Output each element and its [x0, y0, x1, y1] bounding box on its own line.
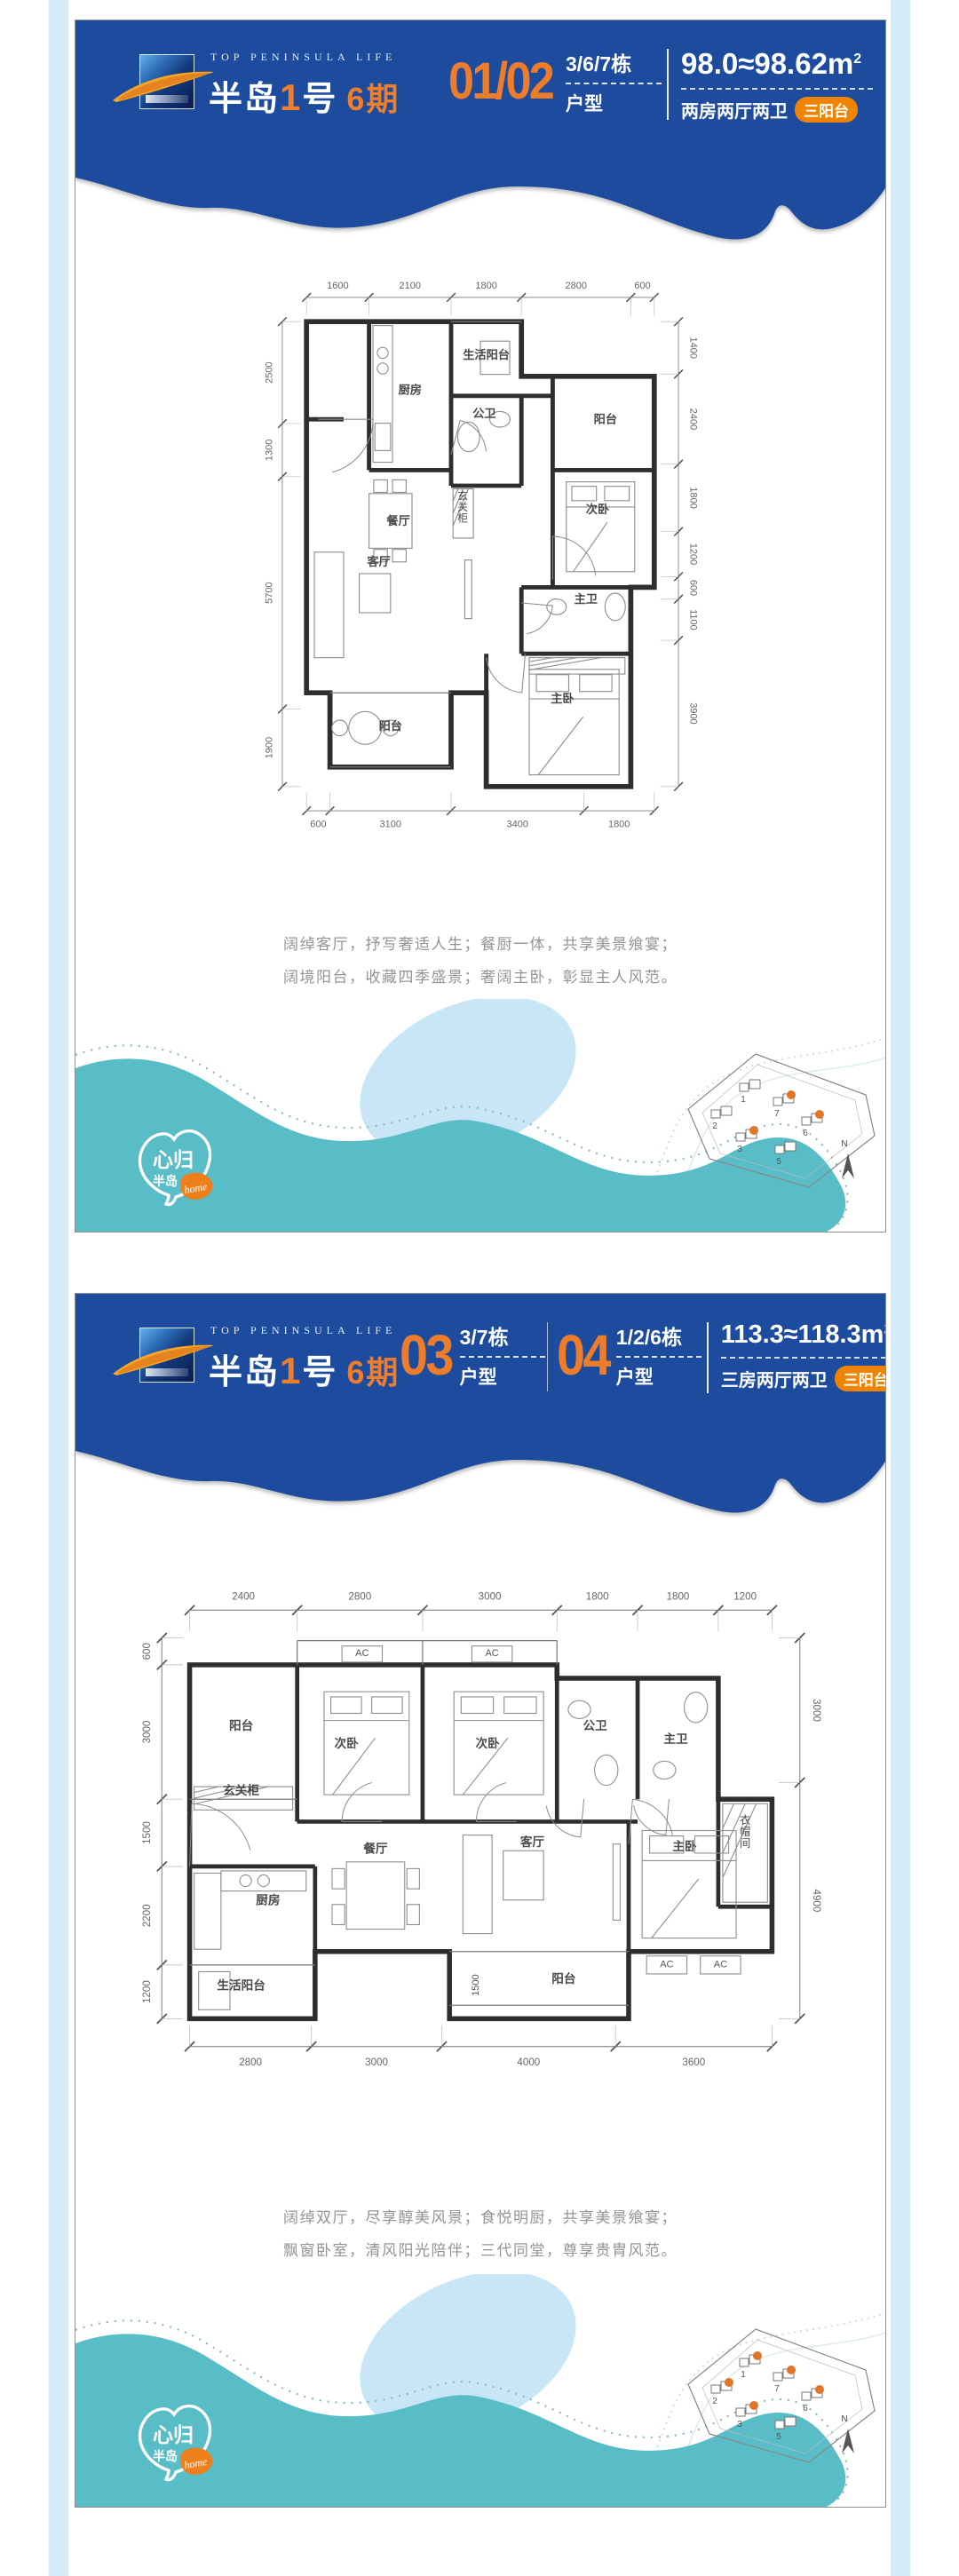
plan-label: 1800	[475, 281, 496, 291]
plan-label: 3000	[141, 1721, 153, 1744]
header-wave	[75, 1426, 885, 1524]
description-line: 阔绰客厅，抒写奢适人生；餐厨一体，共享美景飨宴；	[75, 928, 885, 961]
card-header: TOP PENINSULA LIFE 半岛1号6期 01/02 3/6/7栋 户…	[75, 20, 885, 154]
unit-info: 03 3/7栋 户型 04 1/2/6栋 户型	[400, 1320, 886, 1393]
plan-label: 2400	[687, 408, 698, 430]
site-map: 123567N	[676, 2322, 878, 2471]
room-spec: 两房两厅两卫	[681, 97, 788, 123]
plan-label: 1800	[585, 1591, 608, 1603]
plan-label: 1900	[264, 737, 274, 758]
room-label: 公卫	[472, 407, 495, 420]
room-spec: 三房两厅两卫	[721, 1366, 828, 1391]
plan-outline	[306, 321, 654, 787]
right-accent-strip	[891, 0, 910, 2576]
room-label: 生活阳台	[463, 347, 510, 361]
building-number: 3	[737, 1145, 742, 1154]
page: TOP PENINSULA LIFE 半岛1号6期 01/02 3/6/7栋 户…	[0, 0, 959, 2576]
plan-label: 600	[687, 580, 698, 596]
inner-label: AC	[713, 1959, 726, 1970]
unit-type-label: 户型	[566, 90, 662, 116]
building-footprint	[736, 1133, 745, 1141]
highlighted-building-dot	[753, 2351, 762, 2360]
description-text: 阔绰客厅，抒写奢适人生；餐厨一体，共享美景飨宴； 阔境阳台，收藏四季盛景；奢阔主…	[75, 928, 885, 994]
plan-label: 1100	[687, 609, 698, 630]
unit-type-label: 户型	[616, 1363, 701, 1390]
site-map: 123567N	[676, 1047, 878, 1196]
room-label: 次卧	[475, 1736, 500, 1750]
area-sup: 2	[884, 1321, 886, 1336]
fish-swoosh-icon	[111, 1340, 216, 1377]
room-label: 公卫	[583, 1719, 607, 1732]
unit-info: 01/02 3/6/7栋 户型 98.0≈98.62m2 两房两厅两卫 三阳台	[448, 47, 873, 123]
inner-label: AC	[355, 1648, 369, 1659]
building-footprint	[721, 1106, 732, 1115]
brand-name: 半岛1号6期	[209, 71, 400, 120]
room-label: 餐厅	[362, 1842, 388, 1856]
header-divider	[667, 49, 669, 120]
building-number: 1	[741, 1095, 746, 1105]
plan-label: 2100	[400, 281, 421, 291]
header-wave	[75, 153, 885, 250]
highlighted-building-dot	[725, 2378, 733, 2387]
plan-label: 3000	[365, 2057, 388, 2068]
unit-divider	[547, 1322, 548, 1391]
plan-label: 2800	[239, 2057, 262, 2068]
plan-label: 1200	[687, 543, 698, 565]
room-label: 生活阳台	[217, 1978, 265, 1993]
room-label: 主卫	[663, 1732, 688, 1746]
building-footprint	[736, 2408, 745, 2416]
building-footprint	[711, 1110, 720, 1118]
brand-part: 号	[302, 1354, 337, 1391]
room-label: 玄关柜	[457, 489, 468, 524]
unit-group-04: 04 1/2/6栋 户型	[557, 1320, 701, 1390]
card-header: TOP PENINSULA LIFE 半岛1号6期 03 3/7栋 户型 04	[75, 1294, 885, 1427]
brand-tagline: TOP PENINSULA LIFE	[210, 51, 400, 64]
plan-label: 1200	[733, 1591, 757, 1603]
floor-plan-svg: 2400280030001800180012002800300040003600…	[131, 1580, 830, 2077]
plan-label: 1800	[666, 1591, 689, 1603]
building-footprint	[773, 2373, 782, 2381]
unit-number: 04	[557, 1320, 609, 1390]
area-value: 98.0≈98.62m2	[681, 47, 873, 90]
brand-name: 半岛1号6期	[209, 1344, 400, 1393]
room-label: 客厅	[366, 554, 390, 568]
building-footprint	[785, 1142, 796, 1151]
plan-label: 1800	[608, 820, 630, 830]
building-footprint	[802, 2392, 811, 2400]
room-label: 主卧	[672, 1839, 697, 1853]
plan-label: 2500	[264, 361, 274, 383]
building-number: 2	[712, 2397, 717, 2406]
unit-number: 01/02	[448, 47, 552, 116]
building-number: 6	[803, 1129, 808, 1138]
plan-label: 1600	[327, 281, 348, 291]
brand-part-number: 1	[280, 76, 302, 118]
building-footprint	[740, 2358, 749, 2366]
brand-part: 半岛	[209, 1354, 280, 1391]
plan-label: 1800	[687, 487, 698, 508]
fish-swoosh-icon	[111, 67, 216, 104]
description-line: 阔境阳台，收藏四季盛景；奢阔主卧，彰显主人风范。	[75, 961, 885, 994]
plan-label: 600	[310, 820, 326, 830]
brand-tagline: TOP PENINSULA LIFE	[210, 1324, 400, 1337]
site-inner-road	[702, 1065, 862, 1178]
heart-logo-text: 心归	[153, 2423, 194, 2446]
room-label: 玄关柜	[223, 1783, 259, 1797]
room-label: 厨房	[399, 383, 422, 397]
brand-part: 半岛	[209, 81, 280, 118]
inner-label: 1500	[470, 1974, 480, 1996]
plan-label: 3000	[478, 1591, 501, 1603]
plan-label: 3400	[507, 820, 528, 830]
room-label: 阳台	[379, 718, 402, 733]
plan-label: 4900	[810, 1890, 821, 1913]
unit-building: 1/2/6栋	[616, 1320, 701, 1358]
building-footprint	[802, 1117, 811, 1125]
building-footprint	[740, 1083, 749, 1091]
brand-part-number: 1	[280, 1350, 302, 1391]
building-footprint	[785, 2417, 796, 2426]
room-label: 阳台	[551, 1971, 575, 1986]
inner-label: AC	[660, 1959, 673, 1970]
room-label: 餐厅	[386, 513, 409, 527]
building-footprint	[773, 1098, 782, 1106]
description-line: 阔绰双厅，尽享醇美风景；食悦明厨，共享美景飨宴；	[75, 2201, 885, 2234]
brand-part: 号	[302, 81, 337, 118]
room-label: 主卫	[575, 591, 598, 606]
plan-label: 3600	[682, 2057, 705, 2068]
unit-group: 01/02 3/6/7栋 户型	[448, 47, 662, 116]
plan-label: 5700	[264, 582, 274, 603]
header-divider	[707, 1322, 709, 1393]
room-label: 厨房	[256, 1893, 280, 1907]
brand-phase: 6期	[346, 81, 400, 117]
unit-building: 3/6/7栋	[566, 47, 662, 84]
room-label: 主卧	[551, 691, 574, 705]
unit-number: 03	[400, 1320, 452, 1390]
plan-label: 1300	[264, 440, 274, 461]
highlighted-building-dot	[787, 1090, 796, 1099]
highlighted-building-dot	[749, 2401, 758, 2410]
building-number: 7	[774, 1109, 780, 1119]
heart-logo-text: 半岛	[153, 2449, 178, 2463]
north-label: N	[841, 2414, 847, 2424]
area-info: 113.3≈118.3m2 三房两厅两卫 三阳台	[721, 1320, 886, 1391]
description-line: 飘窗卧室，清风阳光陪伴；三代同堂，尊享贵胄风范。	[75, 2234, 885, 2267]
heart-logo: 心归半岛home	[132, 1125, 218, 1212]
highlighted-building-dot	[749, 1126, 758, 1135]
unit-building: 3/7栋	[460, 1320, 545, 1358]
plan-label: 2200	[141, 1904, 153, 1927]
building-number: 2	[712, 1122, 717, 1131]
building-number: 1	[741, 2370, 746, 2380]
plan-label: 600	[141, 1643, 153, 1660]
plan-label: 600	[634, 281, 650, 291]
building-footprint	[775, 2421, 784, 2429]
brand-text: TOP PENINSULA LIFE 半岛1号6期	[209, 47, 400, 120]
floorplan-card-03-04: TOP PENINSULA LIFE 半岛1号6期 03 3/7栋 户型 04	[75, 1293, 886, 2508]
plan-label: 1200	[141, 1980, 153, 2003]
unit-type-label: 户型	[460, 1363, 545, 1390]
building-number: 7	[774, 2384, 780, 2394]
room-label: 次卧	[586, 502, 609, 516]
room-label: 阳台	[594, 412, 617, 426]
left-accent-strip	[49, 0, 68, 2576]
highlighted-building-dot	[815, 2385, 824, 2394]
plan-label: 3900	[687, 702, 698, 724]
room-label: 次卧	[334, 1736, 359, 1750]
heart-logo-text: 心归	[153, 1148, 194, 1171]
building-footprint	[711, 2385, 720, 2393]
plan-label: 3100	[380, 820, 401, 830]
unit-group-03: 03 3/7栋 户型	[400, 1320, 544, 1390]
balcony-badge: 三阳台	[835, 1366, 886, 1391]
area-sup: 2	[853, 52, 861, 67]
plan-label: 1500	[141, 1821, 153, 1844]
site-inner-road	[702, 2340, 862, 2453]
plan-label: 2400	[232, 1591, 255, 1603]
room-label: 客厅	[519, 1835, 544, 1849]
building-number: 3	[737, 2420, 742, 2429]
room-label: 阳台	[228, 1718, 252, 1732]
balcony-badge: 三阳台	[795, 97, 858, 123]
brand-logo	[139, 54, 194, 109]
brand-text: TOP PENINSULA LIFE 半岛1号6期	[209, 1320, 400, 1393]
plan-label: 4000	[517, 2057, 540, 2068]
highlighted-building-dot	[787, 2366, 796, 2374]
building-number: 5	[776, 2432, 781, 2442]
plan-label: 3000	[810, 1699, 821, 1722]
north-arrow-icon	[842, 1153, 854, 1178]
plan-label: 1400	[687, 337, 698, 359]
floor-plan-2: 2400280030001800180012002800300040003600…	[75, 1580, 885, 2088]
description-text: 阔绰双厅，尽享醇美风景；食悦明厨，共享美景飨宴； 飘窗卧室，清风阳光陪伴；三代同…	[75, 2201, 885, 2267]
brand-logo	[139, 1328, 194, 1383]
brand-phase: 6期	[346, 1354, 400, 1391]
room-label: 衣帽间	[740, 1813, 750, 1850]
floor-plan-svg: 1600210018002800600600310034001800250013…	[256, 271, 705, 837]
north-arrow-icon	[842, 2429, 854, 2453]
building-footprint	[775, 1145, 784, 1153]
heart-logo-text: 半岛	[153, 1174, 178, 1188]
building-footprint	[749, 1080, 760, 1089]
inner-label: AC	[485, 1648, 498, 1659]
plan-label: 2800	[348, 1591, 371, 1603]
north-label: N	[841, 1139, 847, 1149]
floorplan-card-01-02: TOP PENINSULA LIFE 半岛1号6期 01/02 3/6/7栋 户…	[75, 20, 886, 1233]
building-number: 6	[803, 2404, 808, 2414]
heart-logo: 心归半岛home	[132, 2400, 218, 2487]
highlighted-building-dot	[815, 1110, 824, 1119]
plan-label: 2800	[566, 281, 587, 291]
area-info: 98.0≈98.62m2 两房两厅两卫 三阳台	[681, 47, 873, 123]
building-number: 5	[776, 1157, 781, 1167]
area-value: 113.3≈118.3m2	[721, 1320, 886, 1359]
floor-plan-1: 1600210018002800600600310034001800250013…	[75, 271, 885, 848]
